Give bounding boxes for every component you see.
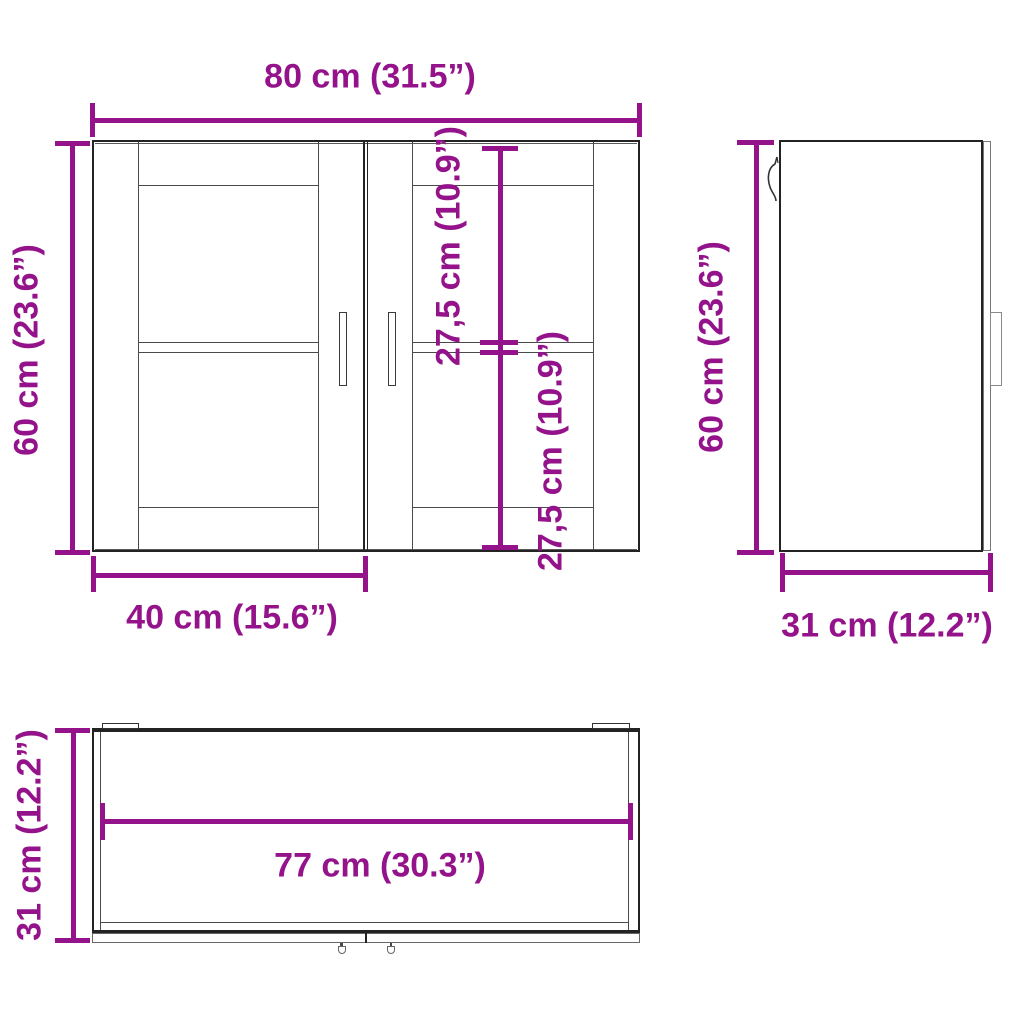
front-door-width-tick-right — [363, 556, 368, 592]
front-section-dimension-line — [498, 148, 503, 547]
front-section-tick-middle-lower — [480, 350, 518, 355]
left-door-bottom-rail-line — [138, 507, 319, 508]
top-depth-dimension-line — [71, 730, 76, 940]
side-height-dimension-label: 60 cm (23.6”) — [693, 241, 732, 453]
left-door-right-stile-line — [318, 142, 319, 550]
front-width-dimension-line — [92, 118, 640, 123]
front-width-dimension-tick-right — [637, 103, 642, 137]
top-front-inner-line — [101, 922, 629, 923]
front-width-dimension-label: 80 cm (31.5”) — [264, 58, 476, 97]
right-door-right-stile-line — [593, 142, 594, 550]
front-width-dimension-tick-left — [90, 103, 95, 137]
right-door-handle — [388, 312, 396, 386]
wall-bracket-right — [592, 723, 630, 730]
wall-hook-icon — [764, 156, 782, 202]
top-depth-tick-bottom — [55, 938, 90, 943]
side-height-dimension-tick-bottom — [737, 550, 774, 555]
top-depth-tick-top — [55, 728, 90, 733]
door-split-line-right — [367, 142, 369, 550]
glass-shelf-bottom-line-left — [138, 352, 319, 353]
front-section-tick-bottom — [482, 545, 518, 550]
front-height-dimension-line — [70, 143, 75, 552]
cabinet-side-outline — [779, 140, 983, 552]
front-section-tick-middle-upper — [480, 340, 518, 345]
side-door-handle — [990, 312, 1002, 386]
top-inner-width-tick-left — [100, 803, 105, 840]
top-inner-width-dimension-line — [102, 819, 630, 824]
left-door-handle — [339, 312, 347, 386]
cabinet-top-outline — [92, 730, 640, 933]
front-section-tick-top — [482, 146, 518, 151]
top-inner-width-tick-right — [628, 803, 633, 840]
door-split-line-left — [363, 142, 365, 550]
left-door-top-rail-line — [138, 185, 319, 186]
top-back-edge-thick-line — [92, 728, 640, 732]
top-depth-dimension-label: 31 cm (12.2”) — [11, 729, 50, 941]
wall-bracket-left — [102, 723, 139, 730]
left-door-left-stile-line — [138, 142, 139, 550]
front-upper-section-dimension-label: 27,5 cm (10.9”) — [430, 126, 469, 366]
top-door-split-line — [365, 933, 367, 943]
front-door-width-dimension-line — [93, 573, 365, 578]
side-height-dimension-line — [754, 142, 759, 552]
side-depth-dimension-line — [782, 570, 990, 575]
side-depth-tick-left — [780, 553, 785, 592]
front-lower-section-dimension-label: 27,5 cm (10.9”) — [532, 331, 571, 571]
side-depth-tick-right — [988, 553, 993, 592]
top-inner-width-dimension-label: 77 cm (30.3”) — [274, 847, 486, 886]
dimension-diagram: 80 cm (31.5”) 60 cm (23.6”) — [0, 0, 1024, 1024]
side-depth-dimension-label: 31 cm (12.2”) — [781, 607, 993, 646]
top-left-handle-knob — [338, 946, 346, 954]
glass-shelf-top-line-left — [138, 342, 319, 343]
front-height-dimension-label: 60 cm (23.6”) — [8, 244, 47, 456]
front-height-dimension-tick-top — [55, 141, 90, 146]
front-height-dimension-tick-bottom — [55, 550, 90, 555]
front-door-width-dimension-label: 40 cm (15.6”) — [126, 599, 338, 638]
right-door-left-stile-line — [412, 142, 413, 550]
front-door-width-tick-left — [91, 556, 96, 592]
side-height-dimension-tick-top — [737, 140, 774, 145]
top-right-handle-knob — [387, 946, 395, 954]
